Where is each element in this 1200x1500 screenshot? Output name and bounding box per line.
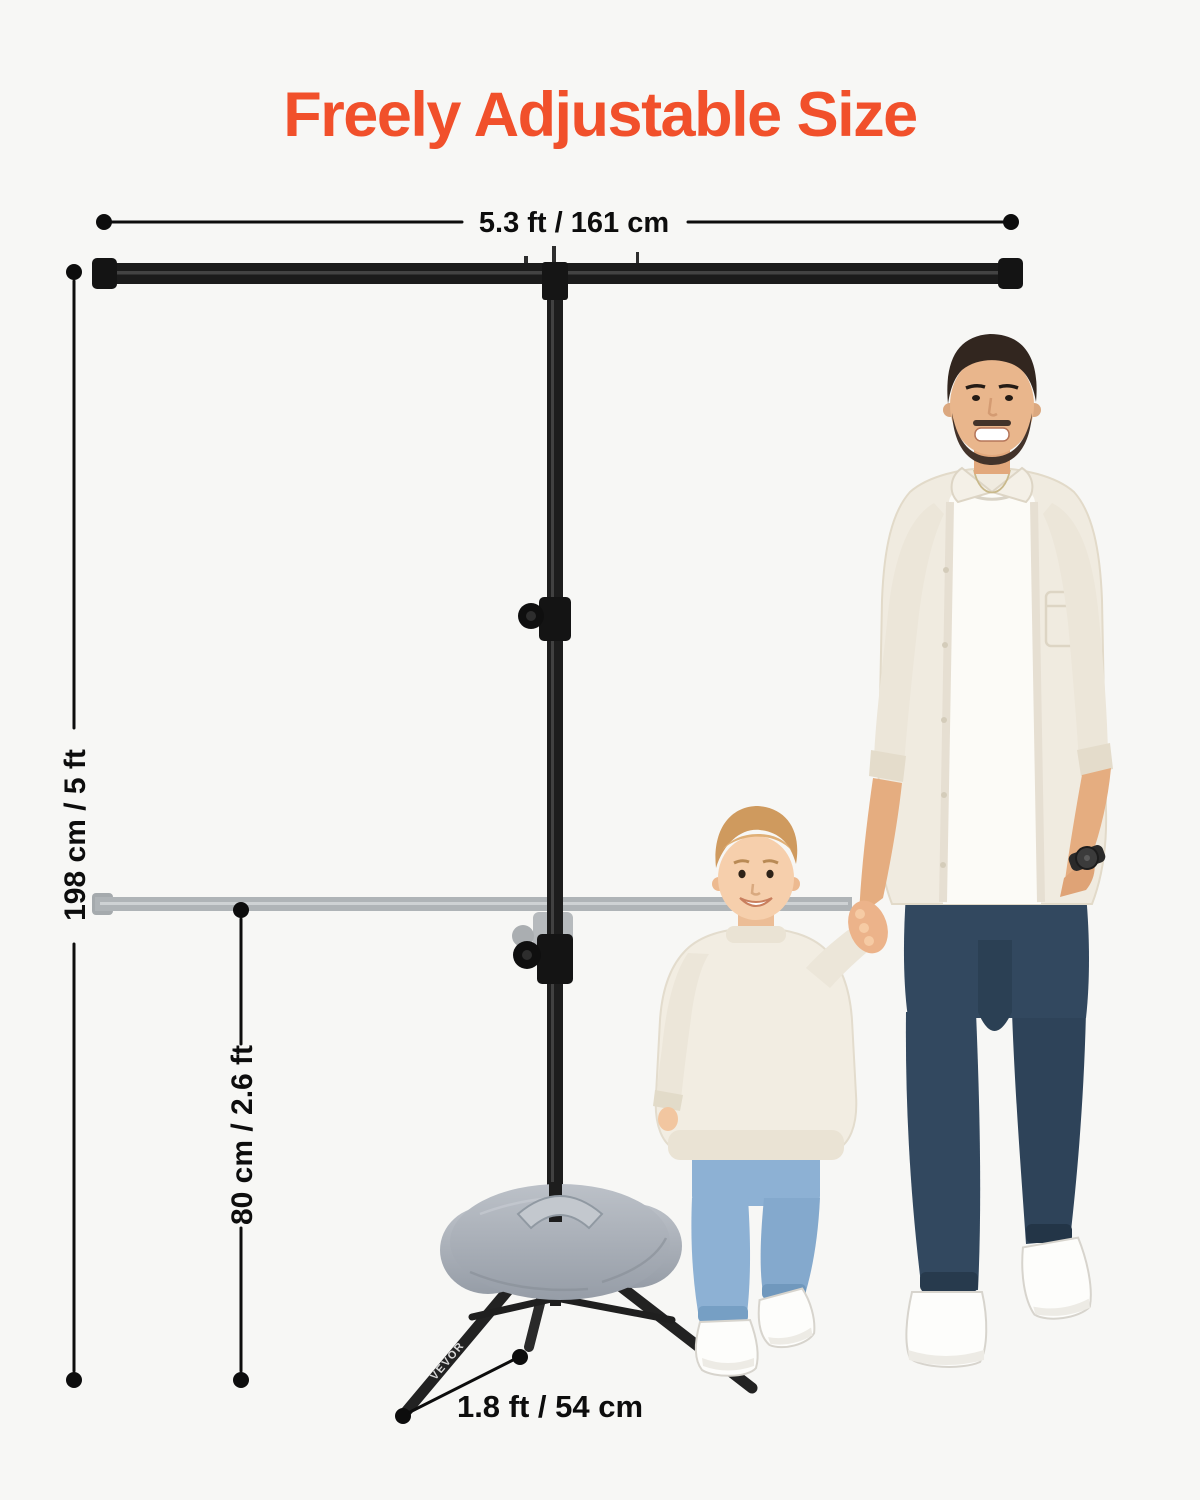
crossbar-width-label: 5.3 ft / 161 cm [479,207,669,239]
lowered-height-label: 80 cm / 2.6 ft [226,1045,259,1225]
stand-height-label: 198 cm / 5 ft [59,749,92,921]
tripod-leg-label: 1.8 ft / 54 cm [457,1389,643,1424]
brand-print-on-leg: VEVOR [428,1340,467,1383]
man-figure [859,334,1113,1367]
product-infographic: Freely Adjustable Size [0,0,1200,1500]
stand-height-dimension: 198 cm / 5 ft [59,264,92,1388]
scene-canvas: VEVOR 5.3 ft / 161 cm [0,0,1200,1500]
lowered-height-dimension: 80 cm / 2.6 ft [226,902,259,1388]
stand-crossbar [92,246,1023,300]
stand-pole [547,280,563,1233]
sandbag-weight [440,1182,682,1300]
child-figure [653,806,874,1376]
crossbar-width-dimension: 5.3 ft / 161 cm [96,207,1019,239]
clamp-knob-upper [518,597,571,641]
